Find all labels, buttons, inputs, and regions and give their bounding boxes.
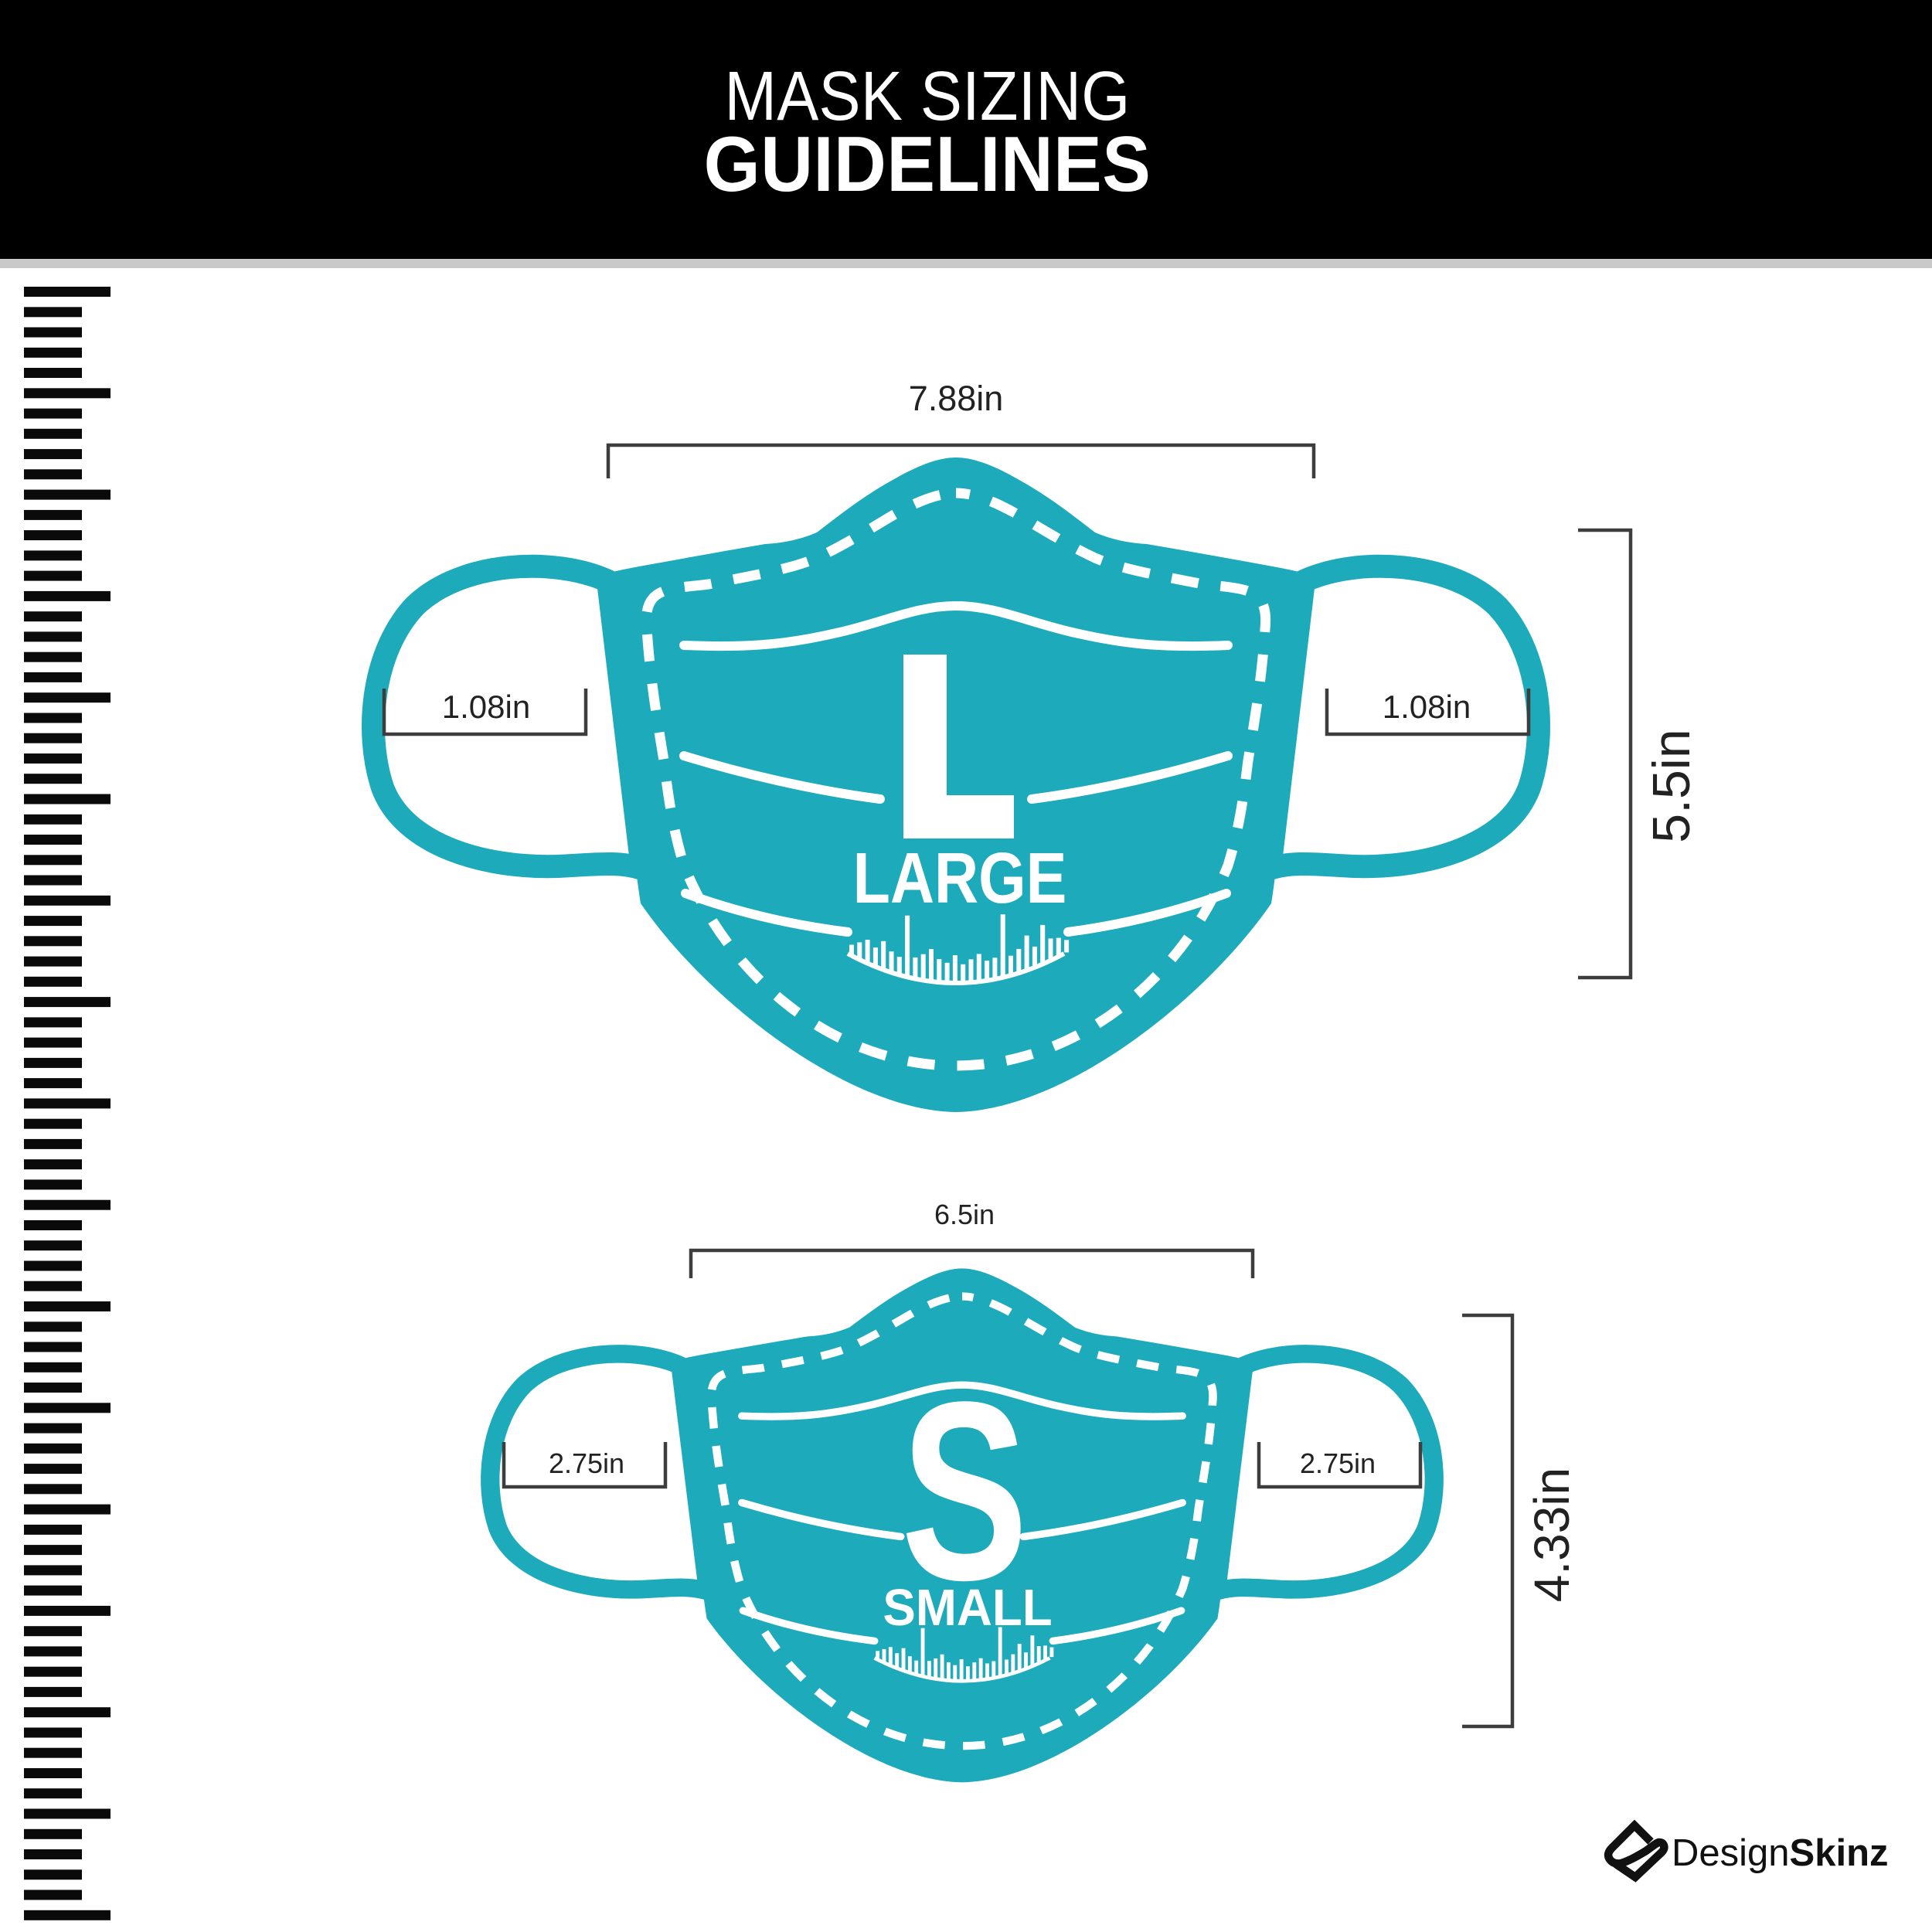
svg-text:LARGE: LARGE bbox=[853, 838, 1067, 918]
svg-text:GUIDELINES: GUIDELINES bbox=[704, 121, 1151, 208]
svg-text:7.88in: 7.88in bbox=[909, 379, 1004, 418]
svg-text:5.5in: 5.5in bbox=[1642, 729, 1701, 842]
svg-text:1.08in: 1.08in bbox=[1383, 689, 1471, 725]
svg-text:2.75in: 2.75in bbox=[1300, 1447, 1376, 1479]
svg-text:6.5in: 6.5in bbox=[934, 1199, 995, 1230]
svg-text:DesignSkinz: DesignSkinz bbox=[1672, 1832, 1889, 1874]
svg-text:4.33in: 4.33in bbox=[1524, 1468, 1580, 1602]
svg-text:SMALL: SMALL bbox=[883, 1579, 1052, 1637]
svg-text:1.08in: 1.08in bbox=[442, 689, 530, 725]
svg-text:2.75in: 2.75in bbox=[549, 1447, 624, 1479]
